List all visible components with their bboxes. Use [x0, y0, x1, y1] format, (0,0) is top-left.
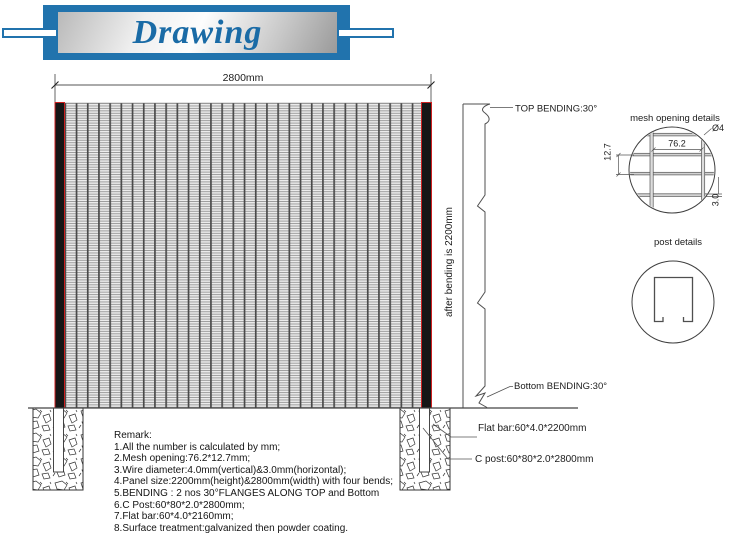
c-post-section — [655, 278, 693, 322]
mesh-opening-width-label: 76.2 — [668, 139, 686, 149]
remark-line: 1.All the number is calculated by mm; — [114, 442, 393, 454]
mesh-detail-title: mesh opening details — [630, 113, 720, 124]
remark-line: 2.Mesh opening:76.2*12.7mm; — [114, 453, 393, 465]
banner-plate: Drawing — [58, 12, 337, 53]
remark-block: Remark: 1.All the number is calculated b… — [114, 430, 393, 534]
right-post-underground — [420, 408, 430, 472]
remark-line: 7.Flat bar:60*4.0*2160mm; — [114, 511, 393, 523]
side-dimension-label: after bending is 2200mm — [444, 207, 455, 317]
drawing-page: Drawing 2800mm — [0, 0, 743, 541]
remark-line: 8.Surface treatment:galvanized then powd… — [114, 523, 393, 535]
horizontal-wire-label: 3.0 — [711, 194, 721, 207]
left-post — [55, 103, 65, 409]
bottom-bending-label: Bottom BENDING:30° — [514, 381, 607, 392]
remark-line: 5.BENDING : 2 nos 30°FLANGES ALONG TOP a… — [114, 488, 393, 500]
remark-line: 4.Panel size:2200mm(height)&2800mm(width… — [114, 476, 393, 488]
mesh-opening-height-label: 12.7 — [603, 143, 613, 161]
left-post-underground — [54, 408, 64, 472]
wire-diameter-label: Ø4 — [712, 123, 724, 133]
mesh-panel — [65, 103, 422, 408]
width-dimension-label: 2800mm — [223, 72, 264, 84]
c-post-label: C post:60*80*2.0*2800mm — [475, 454, 593, 465]
top-bending-label: TOP BENDING:30° — [515, 104, 597, 115]
page-title: Drawing — [133, 16, 263, 50]
side-profile — [463, 104, 513, 408]
banner-left-bar — [2, 28, 58, 38]
post-detail-title: post details — [654, 237, 702, 248]
flat-bar-label: Flat bar:60*4.0*2200mm — [478, 423, 586, 434]
remark-line: 6.C Post:60*80*2.0*2800mm; — [114, 500, 393, 512]
right-post — [422, 103, 432, 409]
remark-line: 3.Wire diameter:4.0mm(vertical)&3.0mm(ho… — [114, 465, 393, 477]
remark-title: Remark: — [114, 430, 393, 442]
banner-right-bar — [337, 28, 394, 38]
post-detail-circle — [632, 261, 714, 343]
